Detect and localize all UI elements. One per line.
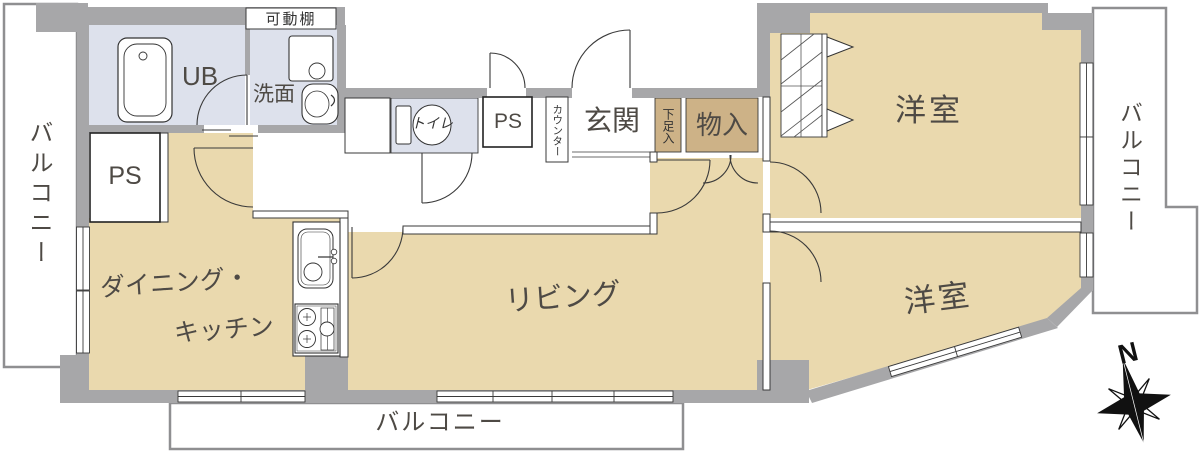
living-floor <box>348 158 763 390</box>
balcony-bottom-outline <box>170 403 683 449</box>
kitchen-window <box>77 227 90 290</box>
bedroom-top-window <box>1080 63 1093 137</box>
balcony-left-outline <box>4 4 77 367</box>
shoe-cabinet-box <box>655 98 681 152</box>
entrance-door <box>572 30 630 88</box>
stove-icon <box>295 304 338 353</box>
counter-box <box>546 97 568 162</box>
kitchen-window-2 <box>77 291 90 353</box>
ps-shaft-left <box>90 133 160 222</box>
washbasin-icon <box>302 84 338 124</box>
compass-icon <box>1086 349 1181 452</box>
toilet-door <box>422 153 472 203</box>
utility-space-box <box>345 98 390 153</box>
bathtub-icon <box>118 38 172 122</box>
toilet-icon <box>396 105 451 145</box>
ps-shaft-center <box>483 97 532 147</box>
bedroom-top-window-2 <box>1080 137 1093 205</box>
living-south-window <box>437 391 673 402</box>
movable-shelf-box <box>246 8 336 29</box>
floorplan-page: バルコニー PS UB 可動棚 洗面 トイレ PS カウンター 玄関 下足入 物… <box>0 0 1200 459</box>
floorplan-drawing <box>0 0 1200 459</box>
washing-machine-icon <box>289 36 333 81</box>
dk-south-window <box>178 391 305 402</box>
entrance-step-line <box>572 152 650 157</box>
storage-box <box>686 98 758 152</box>
ps-door <box>490 53 525 88</box>
balcony-right-outline <box>1093 8 1197 313</box>
bedroom-bottom-window <box>1080 233 1093 277</box>
